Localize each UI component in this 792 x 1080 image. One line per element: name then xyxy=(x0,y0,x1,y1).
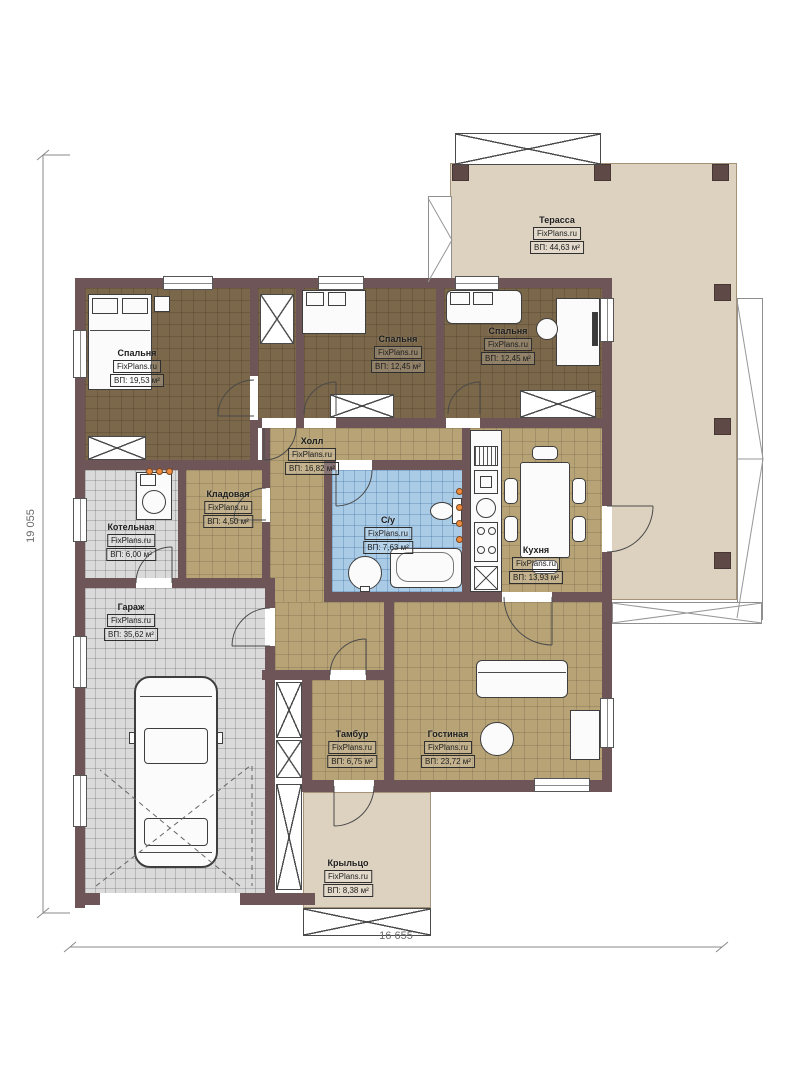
room-label-porch: Крыльцо FixPlans.ru ВП: 8,38 м² xyxy=(323,858,373,897)
door-opening-strip-hall xyxy=(262,418,296,428)
car-mirror xyxy=(129,732,135,744)
terrace-column xyxy=(594,164,611,181)
wardrobe xyxy=(276,682,302,738)
car-hood-line xyxy=(140,696,212,697)
fridge xyxy=(474,566,498,590)
room-label-storage: Кладовая FixPlans.ru ВП: 4,50 м² xyxy=(203,489,253,528)
desk-chair xyxy=(536,318,558,340)
vent-grille xyxy=(474,446,498,466)
door-opening-entry xyxy=(334,780,374,792)
chair xyxy=(572,516,586,542)
sofa xyxy=(476,660,568,698)
brand-watermark: FixPlans.ru xyxy=(328,741,376,754)
wall-living-left xyxy=(384,592,394,792)
roof-outline-left xyxy=(428,196,452,284)
floor-plan: 19 055 16 655 Терасса FixPlans.ru ВП: 44… xyxy=(0,0,792,1080)
brand-watermark: FixPlans.ru xyxy=(324,870,372,883)
door-opening-boiler xyxy=(136,578,172,588)
door-opening-vestibule xyxy=(330,670,366,680)
room-name: Кладовая xyxy=(206,489,249,499)
room-name: Тамбур xyxy=(336,729,369,739)
room-area: ВП: 4,50 м² xyxy=(203,515,253,528)
room-area: ВП: 16,82 м² xyxy=(285,462,339,475)
window xyxy=(73,498,87,542)
chair xyxy=(504,478,518,504)
brand-watermark: FixPlans.ru xyxy=(374,346,422,359)
pillow xyxy=(473,292,493,305)
room-label-boiler: Котельная FixPlans.ru ВП: 6,00 м² xyxy=(106,522,156,561)
socket-marker xyxy=(456,536,463,543)
terrace-column xyxy=(714,552,731,569)
room-area: ВП: 8,38 м² xyxy=(323,884,373,897)
toilet-bowl xyxy=(430,502,454,520)
room-label-kitchen: Кухня FixPlans.ru ВП: 13,93 м² xyxy=(509,545,563,584)
burner xyxy=(477,527,485,535)
door-opening-kitchen-terrace xyxy=(602,506,612,552)
door-opening-bedroom3 xyxy=(446,418,480,428)
room-name: Спальня xyxy=(118,348,157,358)
room-name: Холл xyxy=(301,436,324,446)
room-label-vestibule: Тамбур FixPlans.ru ВП: 6,75 м² xyxy=(327,729,377,768)
blanket-line xyxy=(90,330,150,331)
room-area: ВП: 6,75 м² xyxy=(327,755,377,768)
garage-gate-opening xyxy=(100,893,240,905)
room-name: Терасса xyxy=(539,215,575,225)
room-label-garage: Гараж FixPlans.ru ВП: 35,62 м² xyxy=(104,602,158,641)
room-name: Крыльцо xyxy=(328,858,369,868)
dimension-height: 19 055 xyxy=(25,509,37,543)
window xyxy=(600,298,614,342)
brand-watermark: FixPlans.ru xyxy=(533,227,581,240)
brand-watermark: FixPlans.ru xyxy=(113,360,161,373)
room-name: Гараж xyxy=(118,602,145,612)
room-label-terrace: Терасса FixPlans.ru ВП: 44,63 м² xyxy=(530,215,584,254)
socket-marker xyxy=(456,520,463,527)
room-name: Котельная xyxy=(107,522,154,532)
wall-kitchen-bottom xyxy=(324,592,612,602)
room-name: Гостиная xyxy=(428,729,469,739)
socket-marker xyxy=(146,468,153,475)
car-mirror xyxy=(217,732,223,744)
room-area: ВП: 7,63 м² xyxy=(363,541,413,554)
wall-bathroom-kitchen xyxy=(462,418,470,602)
pillow xyxy=(306,292,324,306)
room-label-hall: Холл FixPlans.ru ВП: 16,82 м² xyxy=(285,436,339,475)
wardrobe xyxy=(520,390,596,418)
coffee-table xyxy=(480,722,514,756)
roof-outline-top xyxy=(455,133,601,165)
brand-watermark: FixPlans.ru xyxy=(484,338,532,351)
brand-watermark: FixPlans.ru xyxy=(512,557,560,570)
brand-watermark: FixPlans.ru xyxy=(204,501,252,514)
car-trunk-line xyxy=(140,852,212,853)
door-opening-storage xyxy=(262,488,270,522)
roof-outline-bottom-right xyxy=(612,602,762,624)
washer-drum xyxy=(142,490,166,514)
chair xyxy=(572,478,586,504)
chair xyxy=(532,446,558,460)
burner xyxy=(488,527,496,535)
burner xyxy=(488,546,496,554)
wall-vestibule-top xyxy=(262,670,394,680)
nightstand xyxy=(154,296,170,312)
washbasin-pedestal xyxy=(360,586,370,592)
socket-marker xyxy=(156,468,163,475)
bathtub-basin xyxy=(396,552,454,582)
room-area: ВП: 23,72 м² xyxy=(421,755,475,768)
room-label-bedroom-2: Спальня FixPlans.ru ВП: 12,45 м² xyxy=(371,334,425,373)
room-label-bathroom: С/у FixPlans.ru ВП: 7,63 м² xyxy=(363,515,413,554)
car-rear-window xyxy=(144,818,208,846)
socket-marker xyxy=(456,488,463,495)
kitchen-sink xyxy=(476,498,496,518)
terrace-column xyxy=(452,164,469,181)
window xyxy=(455,276,499,290)
wall-garage-top xyxy=(75,578,275,588)
wardrobe xyxy=(88,436,146,460)
room-label-bedroom-1: Спальня FixPlans.ru ВП: 19,53 м² xyxy=(110,348,164,387)
car-windshield xyxy=(144,728,208,764)
window xyxy=(73,636,87,688)
pillow xyxy=(92,298,118,314)
wall-bedroom2-bedroom3 xyxy=(436,288,444,428)
wall-bathroom-left xyxy=(324,460,332,602)
dining-table xyxy=(520,462,570,558)
dimension-width: 16 655 xyxy=(379,930,413,942)
socket-marker xyxy=(456,504,463,511)
room-area: ВП: 35,62 м² xyxy=(104,628,158,641)
pillow xyxy=(328,292,346,306)
window xyxy=(318,276,364,290)
wardrobe xyxy=(276,784,302,890)
wardrobe xyxy=(276,740,302,778)
room-hall-floor xyxy=(270,460,324,602)
window xyxy=(534,778,590,792)
wardrobe xyxy=(260,294,294,344)
monitor xyxy=(592,312,598,346)
door-opening-kitchen-living xyxy=(502,592,552,602)
terrace-column xyxy=(714,284,731,301)
washbasin xyxy=(348,556,382,590)
door-opening-garage-side xyxy=(265,608,275,646)
pillow xyxy=(450,292,470,305)
room-area: ВП: 44,63 м² xyxy=(530,241,584,254)
roof-outline-right xyxy=(737,298,763,620)
room-area: ВП: 6,00 м² xyxy=(106,548,156,561)
utility-sink xyxy=(140,474,156,486)
brand-watermark: FixPlans.ru xyxy=(364,527,412,540)
room-area: ВП: 19,53 м² xyxy=(110,374,164,387)
window xyxy=(73,330,87,378)
room-label-bedroom-3: Спальня FixPlans.ru ВП: 12,45 м² xyxy=(481,326,535,365)
terrace-column xyxy=(712,164,729,181)
chair xyxy=(504,516,518,542)
wall-boiler-storage xyxy=(178,460,186,588)
door-opening-bedroom1 xyxy=(250,376,258,420)
window xyxy=(73,775,87,827)
socket-marker xyxy=(166,468,173,475)
brand-watermark: FixPlans.ru xyxy=(107,534,155,547)
room-area: ВП: 12,45 м² xyxy=(371,360,425,373)
wardrobe xyxy=(330,394,394,418)
wall-bedroom1-bottom xyxy=(75,460,270,470)
car xyxy=(134,676,218,868)
sofa-back-line xyxy=(478,672,566,673)
oven-door xyxy=(480,476,492,488)
pillow xyxy=(122,298,148,314)
brand-watermark: FixPlans.ru xyxy=(288,448,336,461)
room-name: Спальня xyxy=(489,326,528,336)
room-area: ВП: 12,45 м² xyxy=(481,352,535,365)
room-area: ВП: 13,93 м² xyxy=(509,571,563,584)
brand-watermark: FixPlans.ru xyxy=(424,741,472,754)
terrace-column xyxy=(714,418,731,435)
tv-cabinet xyxy=(570,710,600,760)
room-name: С/у xyxy=(381,515,395,525)
wall-vestibule-left xyxy=(302,670,312,792)
room-name: Спальня xyxy=(379,334,418,344)
burner xyxy=(477,546,485,554)
room-label-living-room: Гостиная FixPlans.ru ВП: 23,72 м² xyxy=(421,729,475,768)
window xyxy=(600,698,614,748)
brand-watermark: FixPlans.ru xyxy=(107,614,155,627)
room-name: Кухня xyxy=(523,545,549,555)
window xyxy=(163,276,213,290)
room-hall-floor xyxy=(275,602,384,670)
door-opening-bathroom xyxy=(336,460,372,470)
door-opening-bedroom2 xyxy=(304,418,336,428)
